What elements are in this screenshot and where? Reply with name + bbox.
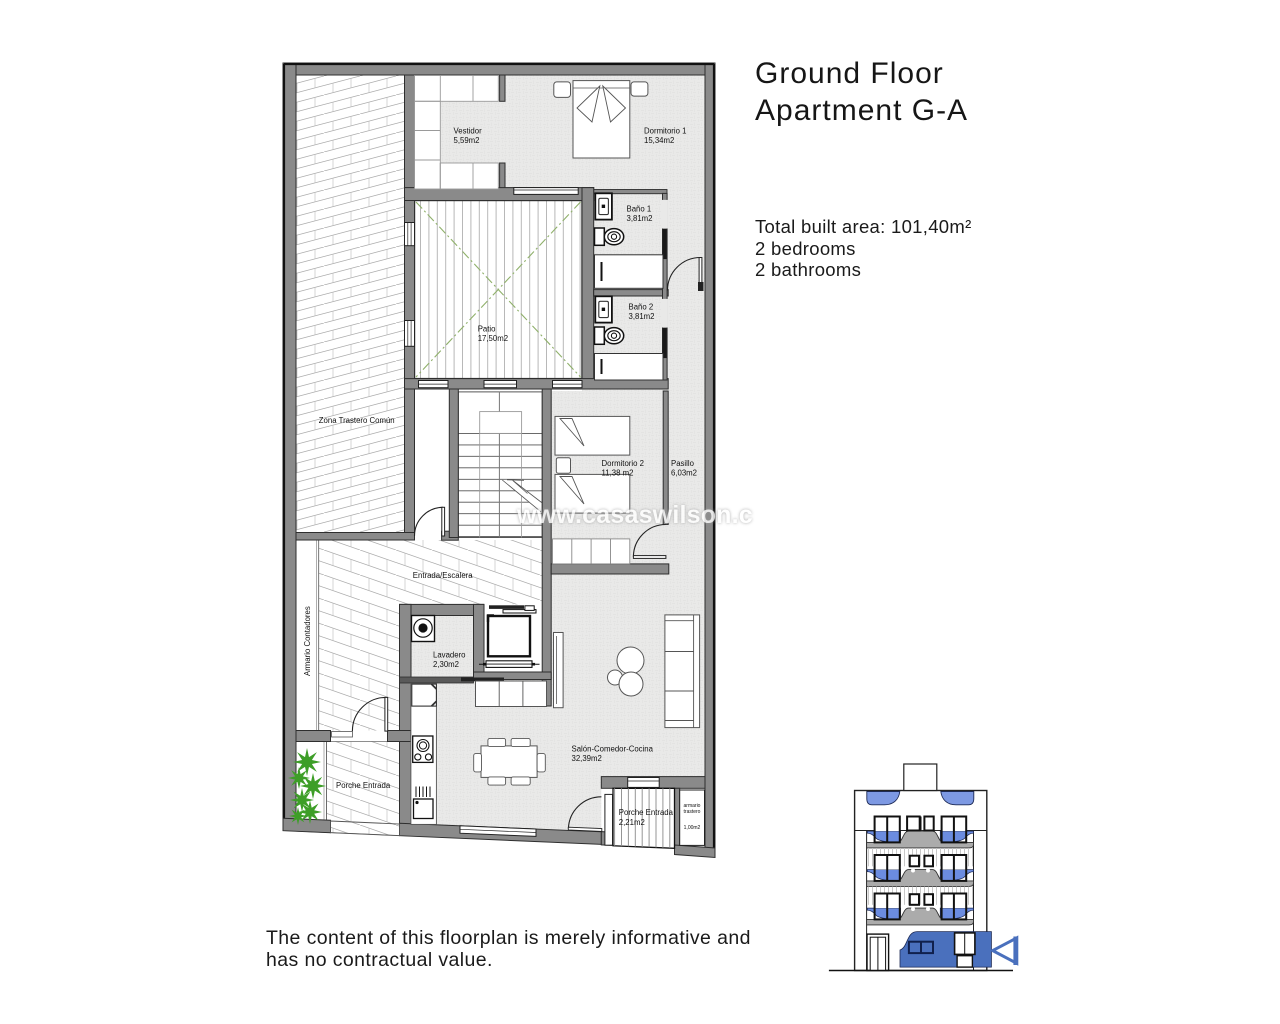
svg-text:Entrada/Escalera: Entrada/Escalera: [413, 571, 473, 580]
svg-text:Baño 13,81m2: Baño 13,81m2: [627, 205, 653, 223]
svg-text:Armario Contadores: Armario Contadores: [303, 606, 312, 676]
svg-text:Vestidor5,59m2: Vestidor5,59m2: [454, 127, 483, 145]
svg-text:Pasillo6,03m2: Pasillo6,03m2: [671, 459, 697, 477]
svg-text:Baño 23,81m2: Baño 23,81m2: [629, 303, 655, 321]
svg-text:Porche Entrada: Porche Entrada: [336, 781, 391, 790]
svg-text:Zona Trastero Común: Zona Trastero Común: [319, 416, 395, 425]
